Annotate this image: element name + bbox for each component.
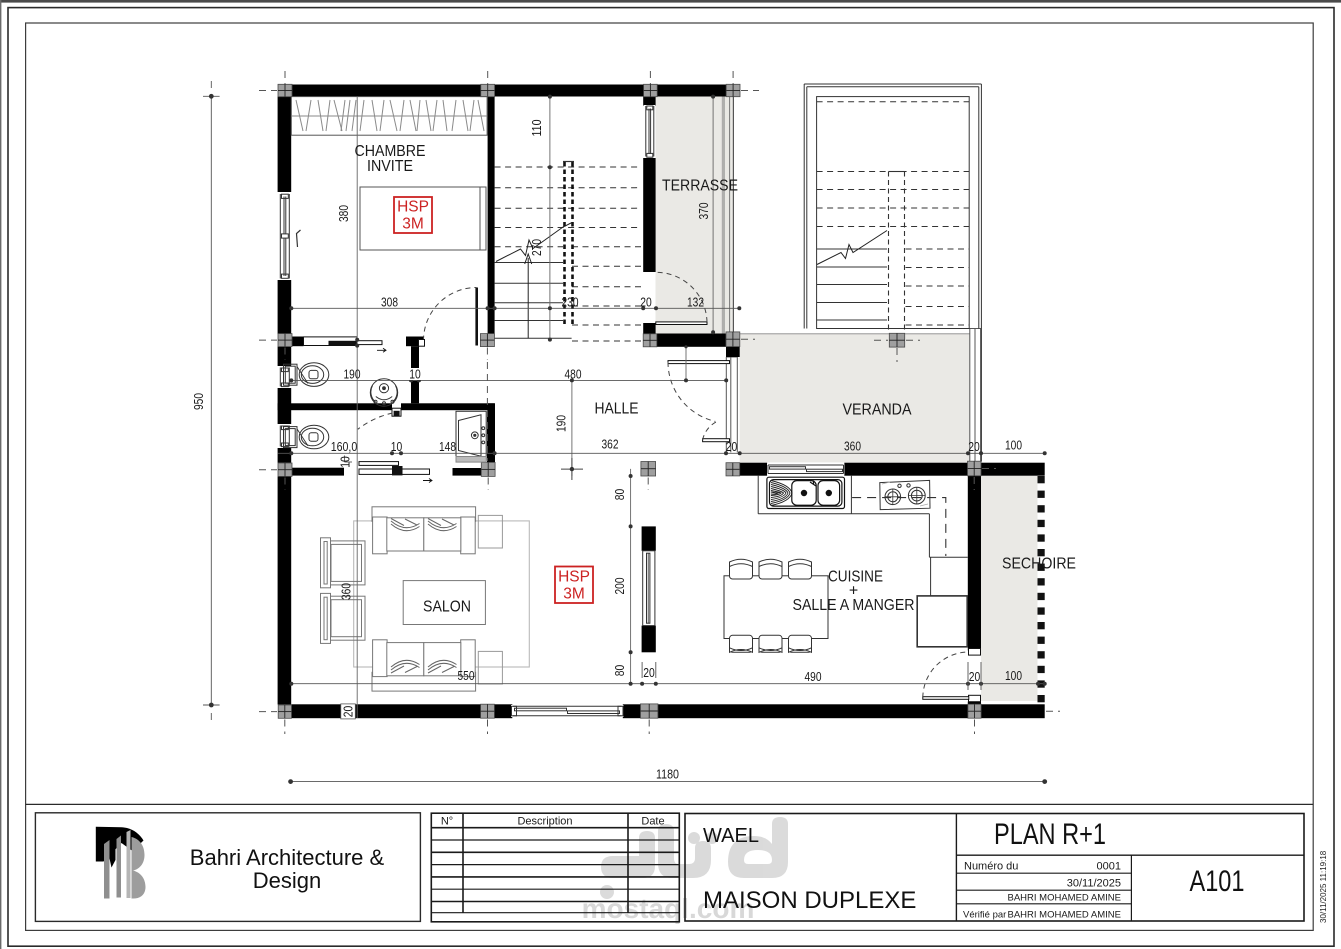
- svg-text:10: 10: [391, 439, 403, 454]
- svg-text:490: 490: [805, 669, 822, 684]
- svg-text:190: 190: [344, 366, 361, 381]
- svg-text:360: 360: [339, 583, 354, 600]
- svg-text:Date: Date: [641, 816, 664, 828]
- svg-text:20: 20: [341, 706, 356, 718]
- svg-text:SECHOIRE: SECHOIRE: [1002, 556, 1076, 573]
- svg-text:80: 80: [612, 489, 627, 501]
- svg-text:BAHRI MOHAMED AMINE: BAHRI MOHAMED AMINE: [1008, 910, 1122, 921]
- svg-text:480: 480: [565, 366, 582, 381]
- svg-text:WAEL: WAEL: [703, 825, 759, 847]
- svg-text:10: 10: [338, 456, 353, 468]
- svg-text:Description: Description: [517, 816, 572, 828]
- svg-text:160,0: 160,0: [331, 439, 358, 454]
- svg-text:190: 190: [554, 415, 569, 432]
- svg-text:950: 950: [191, 393, 206, 410]
- svg-text:Design: Design: [253, 868, 321, 893]
- svg-text:HSP: HSP: [397, 199, 429, 216]
- svg-text:Bahri Architecture &: Bahri Architecture &: [190, 845, 385, 870]
- svg-text:360: 360: [844, 438, 861, 453]
- svg-text:HALLE: HALLE: [595, 401, 639, 418]
- svg-text:A101: A101: [1190, 865, 1245, 898]
- svg-text:100: 100: [1005, 668, 1022, 683]
- svg-text:10: 10: [409, 366, 421, 381]
- svg-text:Numéro du: Numéro du: [964, 861, 1018, 873]
- svg-text:TERRASSE: TERRASSE: [662, 178, 738, 195]
- svg-text:BAHRI MOHAMED AMINE: BAHRI MOHAMED AMINE: [1008, 893, 1122, 904]
- svg-text:230: 230: [562, 294, 579, 309]
- svg-text:SALON: SALON: [423, 599, 471, 616]
- svg-text:SALLE A MANGER: SALLE A MANGER: [793, 597, 915, 614]
- svg-text:HSP: HSP: [558, 569, 590, 586]
- svg-text:132: 132: [687, 294, 704, 309]
- svg-text:3M: 3M: [402, 216, 424, 233]
- svg-text:20: 20: [643, 665, 655, 680]
- svg-text:1180: 1180: [656, 767, 679, 782]
- svg-text:362: 362: [602, 436, 619, 451]
- svg-text:20: 20: [726, 439, 738, 454]
- svg-text:80: 80: [612, 665, 627, 677]
- svg-text:20: 20: [640, 294, 652, 309]
- svg-text:270: 270: [529, 239, 544, 256]
- svg-text:0001: 0001: [1097, 861, 1121, 873]
- svg-text:INVITE: INVITE: [367, 158, 413, 175]
- svg-text:30/11/2025: 30/11/2025: [1067, 878, 1121, 890]
- svg-text:148: 148: [439, 439, 456, 454]
- svg-text:VERANDA: VERANDA: [843, 402, 912, 419]
- svg-text:550: 550: [458, 668, 475, 683]
- svg-text:380: 380: [336, 205, 351, 222]
- svg-text:100: 100: [1005, 437, 1022, 452]
- svg-text:30/11/2025 11:19:18: 30/11/2025 11:19:18: [1319, 850, 1328, 923]
- svg-text:370: 370: [696, 203, 711, 220]
- svg-text:110: 110: [529, 120, 544, 137]
- svg-text:20: 20: [968, 439, 980, 454]
- svg-text:PLAN R+1: PLAN R+1: [994, 818, 1106, 851]
- svg-text:3M: 3M: [563, 586, 585, 603]
- svg-text:Vérifié par: Vérifié par: [963, 910, 1006, 921]
- svg-text:MAISON DUPLEXE: MAISON DUPLEXE: [703, 887, 916, 914]
- svg-text:200: 200: [612, 578, 627, 595]
- svg-text:N°: N°: [441, 816, 453, 828]
- svg-text:20: 20: [969, 669, 981, 684]
- svg-text:308: 308: [381, 294, 398, 309]
